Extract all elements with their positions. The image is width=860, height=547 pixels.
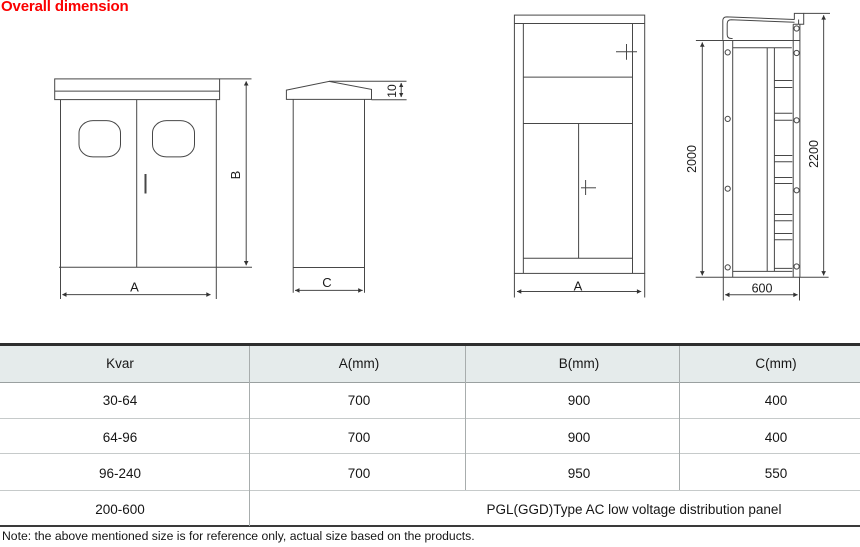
svg-text:600: 600 xyxy=(752,281,773,295)
svg-text:A: A xyxy=(574,278,583,293)
svg-text:C: C xyxy=(322,275,331,290)
svg-text:A: A xyxy=(130,280,139,295)
